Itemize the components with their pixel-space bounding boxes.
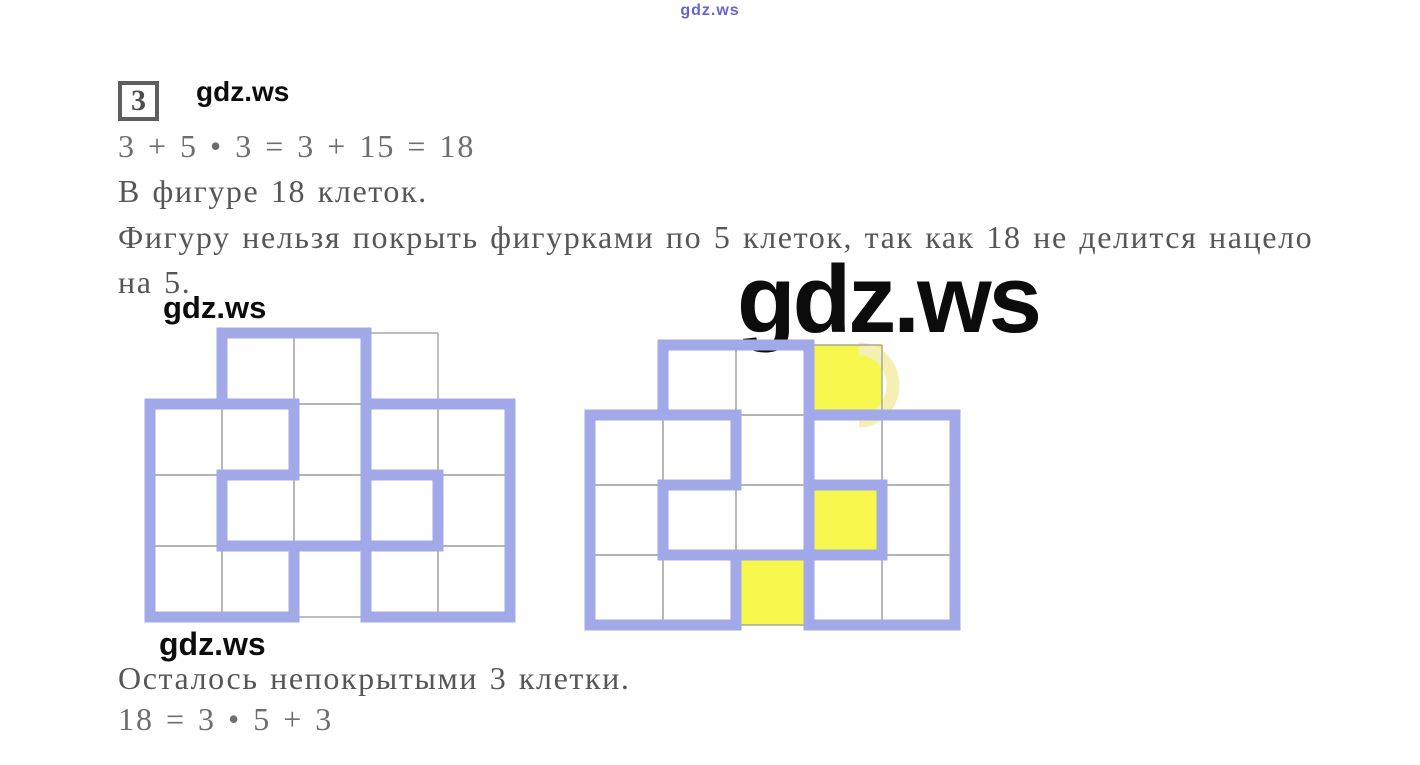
brand-watermark-1: gdz.ws [196, 78, 289, 106]
uncovered-cell [736, 555, 809, 625]
problem-number: 3 [131, 84, 146, 118]
solution-uncovered-note: Осталось непокрытыми 3 клетки. [118, 661, 630, 696]
scanned-solution-page: gdz.ws 3 gdz.ws gdz.ws gdz.ws gdz.ws 3 +… [0, 0, 1420, 765]
solution-explanation-line1: Фигуру нельзя покрыть фигурками по 5 кле… [118, 220, 1313, 255]
solution-cells-total: В фигуре 18 клеток. [118, 174, 428, 209]
solution-explanation-line2: на 5. [118, 265, 191, 300]
right-figure-svg [578, 333, 967, 637]
solution-equation-2: 18 = 3 • 5 + 3 [118, 702, 333, 737]
top-watermark: gdz.ws [680, 2, 739, 20]
solution-equation-1: 3 + 5 • 3 = 3 + 15 = 18 [118, 129, 475, 164]
left-figure-svg [138, 321, 522, 629]
problem-number-box: 3 [118, 81, 159, 121]
brand-watermark-3: gdz.ws [159, 628, 266, 660]
uncovered-cell [809, 485, 882, 555]
